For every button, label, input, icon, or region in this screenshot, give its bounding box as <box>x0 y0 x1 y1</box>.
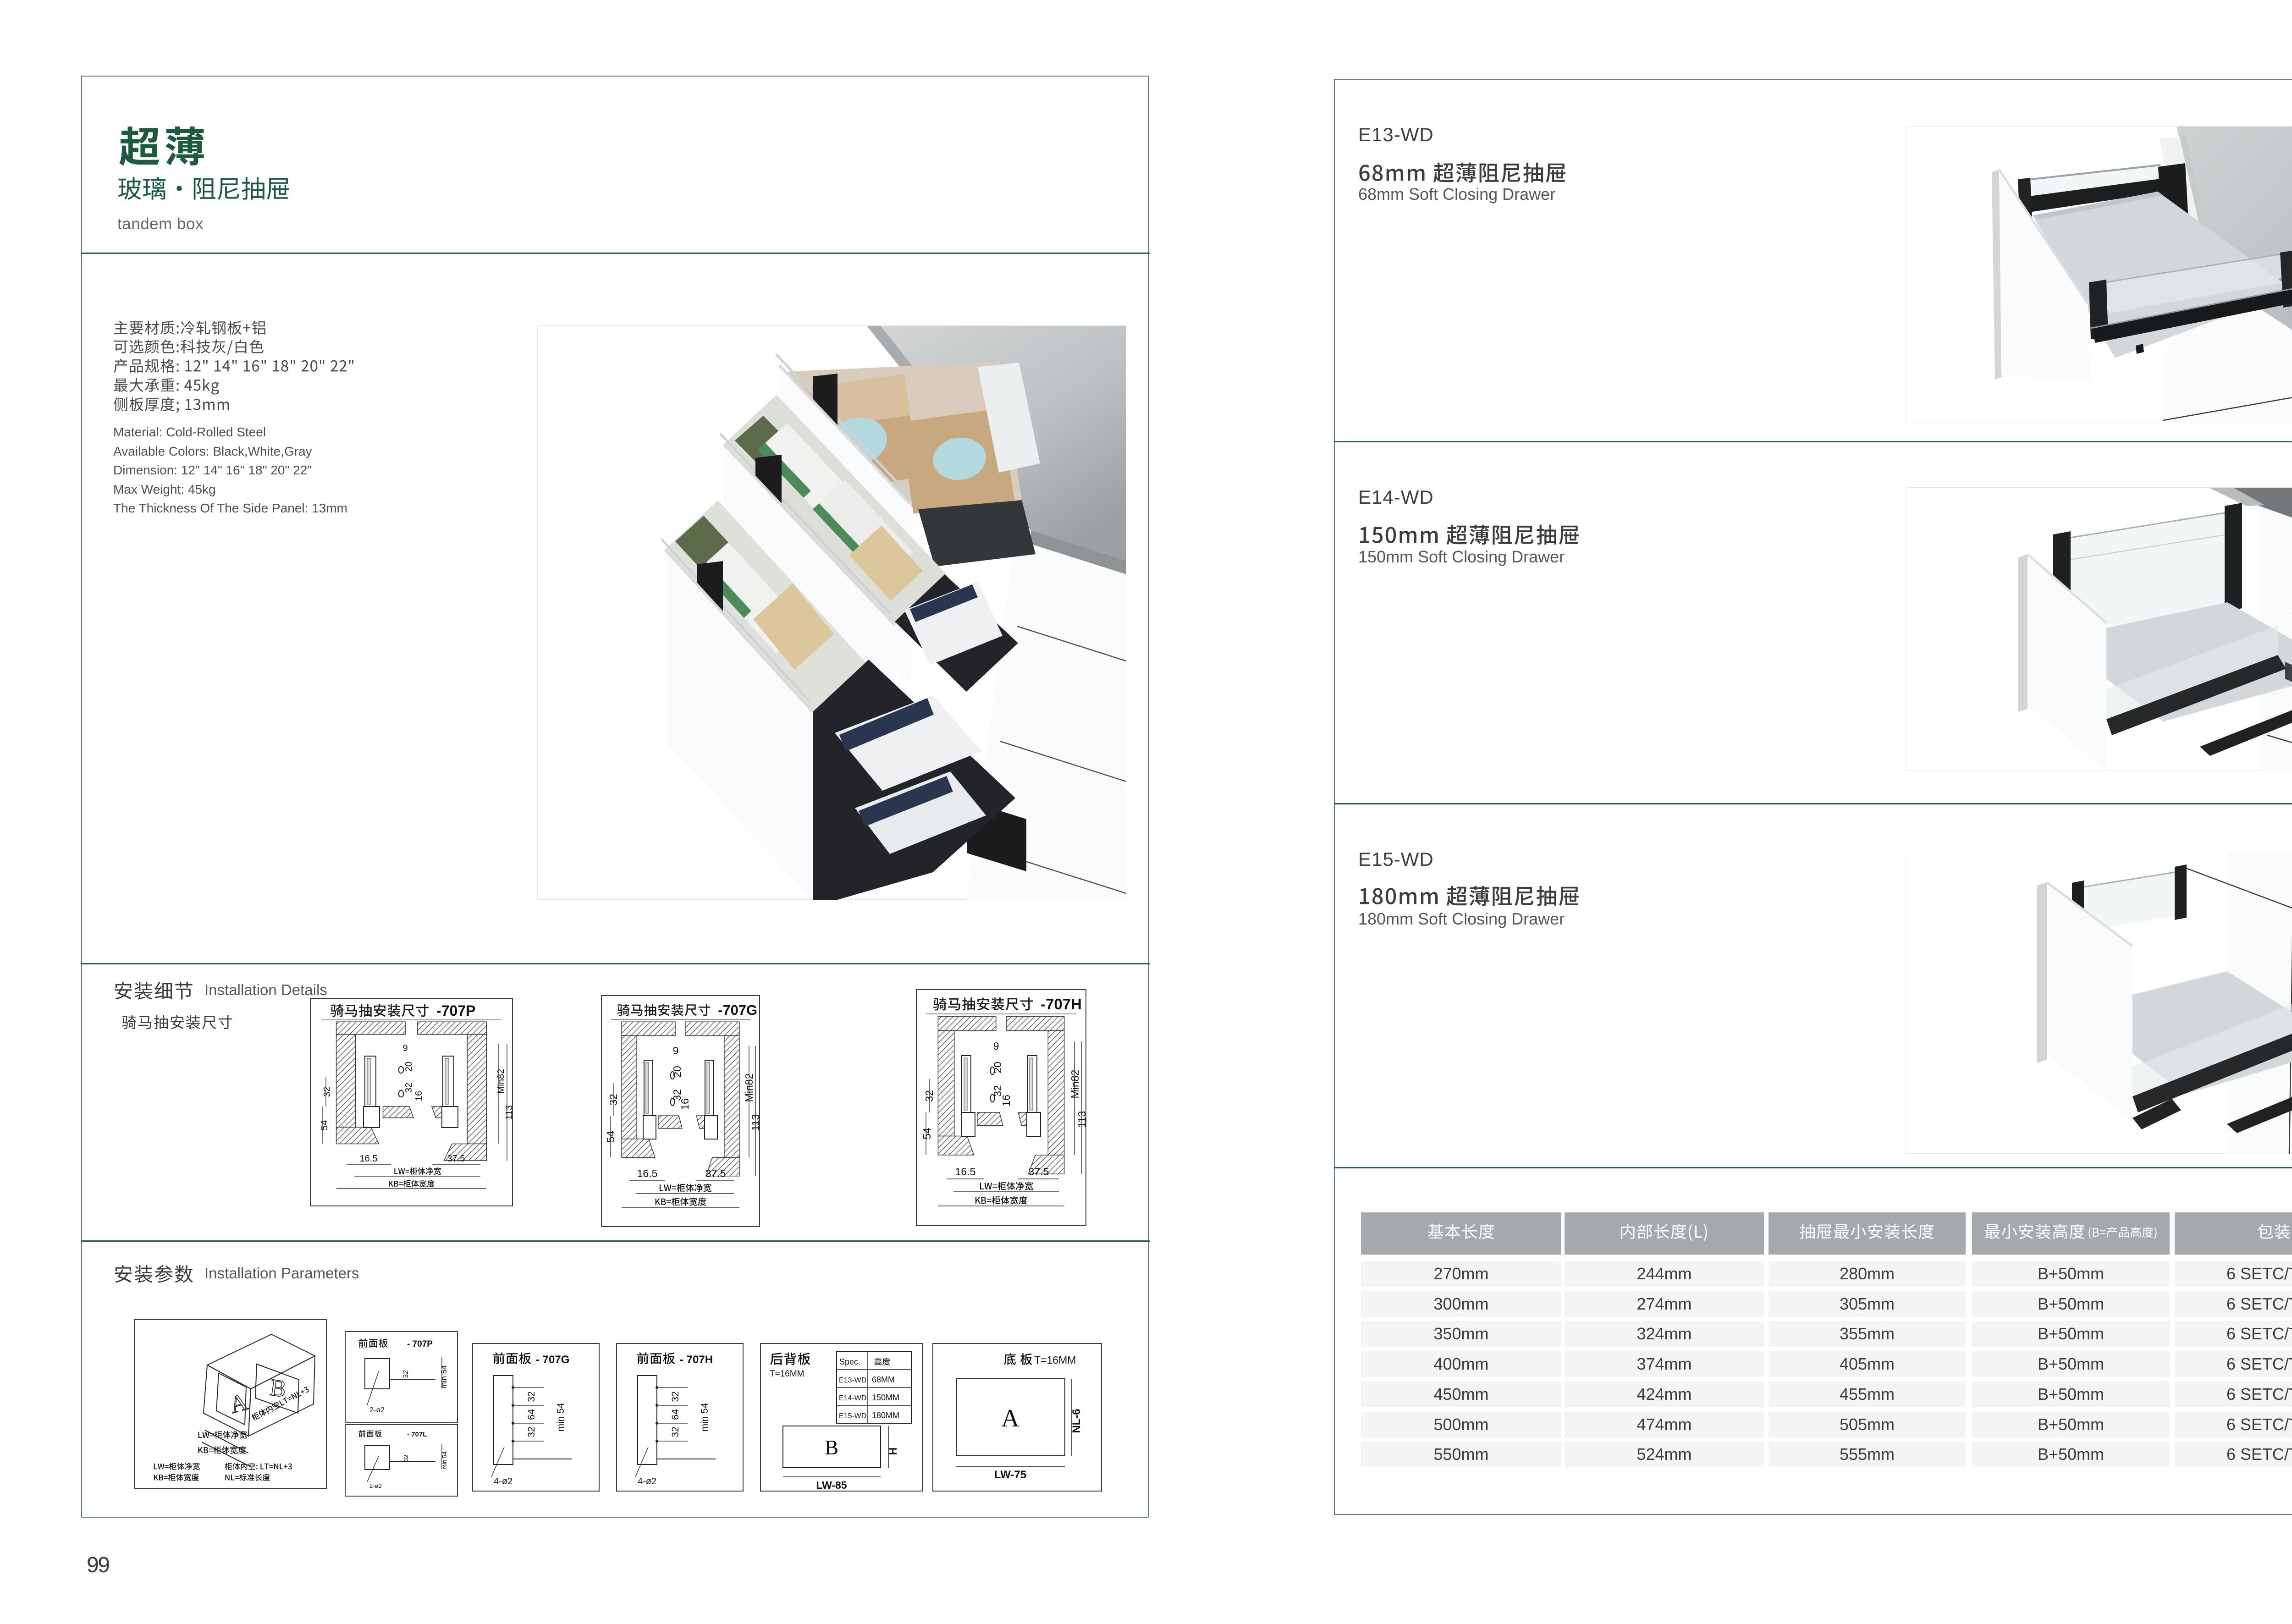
svg-text:32: 32 <box>923 1090 935 1102</box>
svg-text:T=16MM: T=16MM <box>1034 1354 1076 1366</box>
svg-text:-707P: -707P <box>436 1002 475 1019</box>
svg-text:32: 32 <box>404 1083 414 1093</box>
svg-text:113: 113 <box>749 1114 760 1131</box>
svg-text:16.5: 16.5 <box>360 1154 378 1164</box>
svg-text:32: 32 <box>670 1391 681 1402</box>
svg-text:min 54: min 54 <box>556 1403 566 1431</box>
svg-text:37.5: 37.5 <box>705 1167 726 1179</box>
svg-text:E14-WD: E14-WD <box>839 1394 866 1402</box>
svg-text:16.5: 16.5 <box>637 1167 658 1179</box>
svg-text:LW-85: LW-85 <box>816 1479 847 1491</box>
svg-text:37.5: 37.5 <box>447 1154 465 1164</box>
svg-text:54: 54 <box>605 1131 617 1143</box>
svg-text:- 707P: - 707P <box>407 1339 433 1349</box>
svg-text:113: 113 <box>1076 1111 1086 1128</box>
svg-text:Spec.: Spec. <box>839 1357 860 1366</box>
svg-text:20: 20 <box>404 1062 414 1072</box>
svg-text:H: H <box>887 1448 899 1455</box>
svg-text:150MM: 150MM <box>872 1393 899 1402</box>
svg-text:4-ø2: 4-ø2 <box>494 1476 512 1486</box>
svg-text:LW-75: LW-75 <box>994 1469 1026 1481</box>
svg-text:E15-WD: E15-WD <box>839 1412 866 1420</box>
svg-text:64: 64 <box>526 1409 537 1420</box>
svg-text:32: 32 <box>402 1370 410 1378</box>
svg-text:9: 9 <box>402 1043 408 1053</box>
svg-text:E13-WD: E13-WD <box>839 1376 866 1384</box>
svg-text:9: 9 <box>993 1040 999 1052</box>
svg-text:2-ø2: 2-ø2 <box>369 1406 385 1414</box>
svg-text:37.5: 37.5 <box>1029 1166 1049 1178</box>
svg-text:T=16MM: T=16MM <box>770 1369 804 1379</box>
svg-text:16: 16 <box>679 1098 691 1110</box>
svg-text:16: 16 <box>1000 1095 1012 1107</box>
svg-text:180MM: 180MM <box>872 1411 899 1420</box>
svg-text:- 707L: - 707L <box>407 1431 427 1438</box>
svg-text:min 54: min 54 <box>441 1451 448 1469</box>
svg-text:16.5: 16.5 <box>955 1166 976 1178</box>
svg-text:-707H: -707H <box>1041 996 1082 1013</box>
svg-text:Min82: Min82 <box>496 1069 506 1094</box>
svg-text:54: 54 <box>921 1128 933 1140</box>
svg-text:A: A <box>1001 1404 1019 1432</box>
svg-text:16: 16 <box>414 1091 424 1101</box>
svg-text:Min82: Min82 <box>743 1073 755 1102</box>
svg-text:32: 32 <box>526 1391 537 1402</box>
svg-text:32: 32 <box>670 1426 681 1437</box>
svg-text:4-ø2: 4-ø2 <box>638 1476 656 1486</box>
svg-text:20: 20 <box>671 1066 683 1078</box>
svg-text:64: 64 <box>670 1409 681 1420</box>
svg-text:NL-6: NL-6 <box>1070 1409 1083 1433</box>
svg-text:68MM: 68MM <box>872 1375 895 1384</box>
svg-text:32: 32 <box>402 1455 409 1461</box>
svg-text:min 54: min 54 <box>440 1365 448 1388</box>
svg-text:9: 9 <box>673 1045 679 1057</box>
svg-text:B: B <box>825 1436 838 1459</box>
svg-text:2-ø2: 2-ø2 <box>369 1482 382 1489</box>
svg-text:- 707H: - 707H <box>680 1354 713 1366</box>
svg-text:32: 32 <box>607 1094 619 1106</box>
svg-text:32: 32 <box>526 1426 537 1437</box>
svg-text:113: 113 <box>504 1105 513 1120</box>
svg-text:Min82: Min82 <box>1069 1070 1081 1099</box>
svg-text:-707G: -707G <box>718 1002 757 1018</box>
svg-text:- 707G: - 707G <box>536 1354 569 1366</box>
svg-text:32: 32 <box>322 1087 332 1097</box>
svg-text:min 54: min 54 <box>700 1403 710 1431</box>
svg-text:20: 20 <box>992 1062 1003 1073</box>
svg-text:54: 54 <box>320 1120 330 1130</box>
